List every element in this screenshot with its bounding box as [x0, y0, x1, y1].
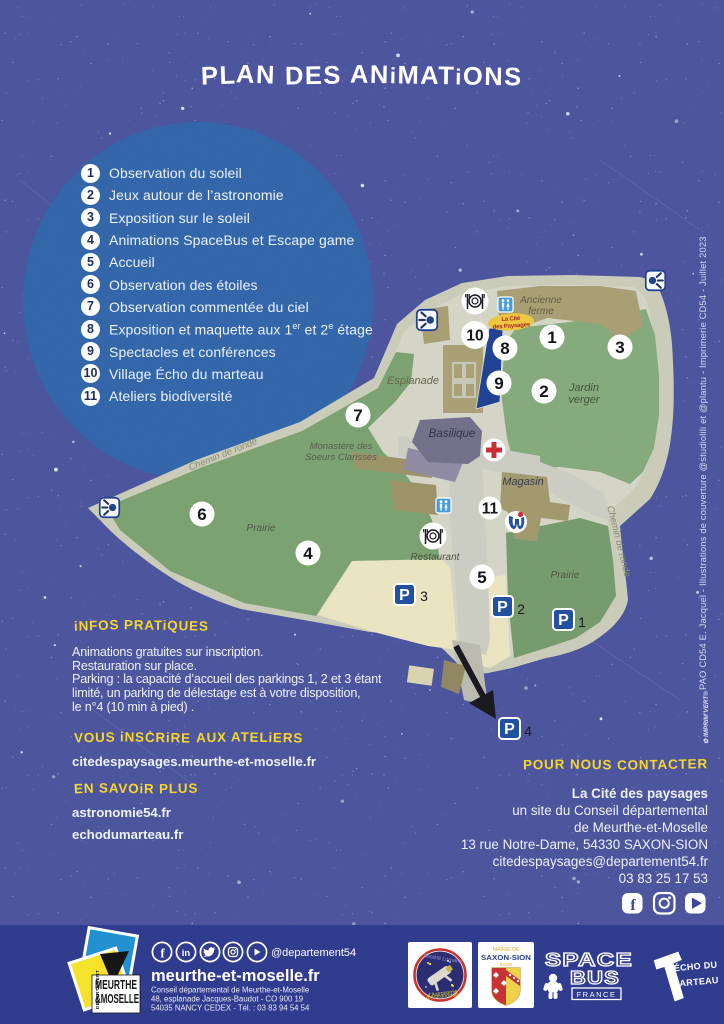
svg-text:f: f — [630, 897, 636, 914]
